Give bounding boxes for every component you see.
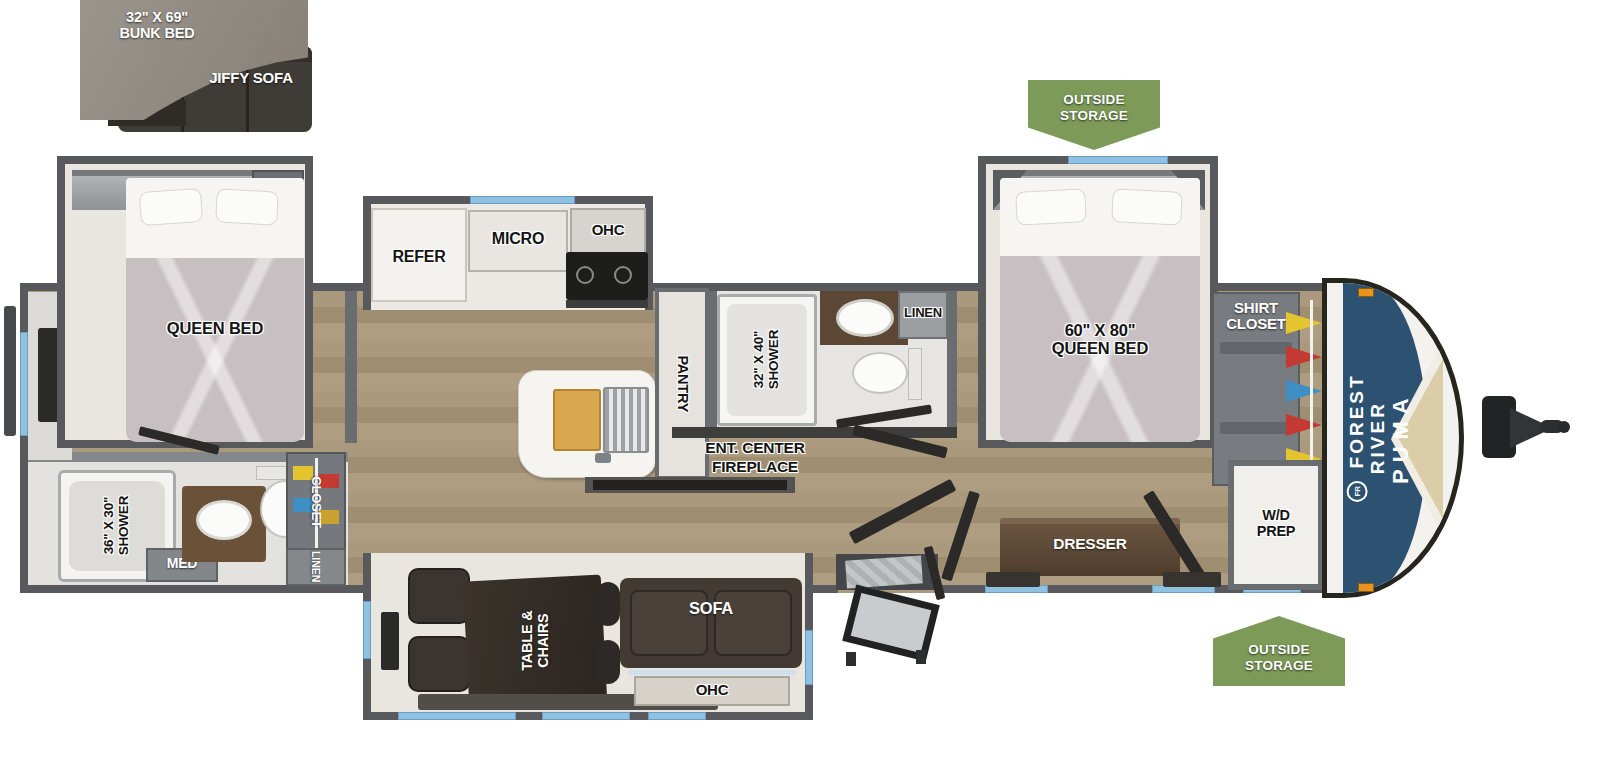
cooktop bbox=[566, 252, 648, 300]
sofa-base bbox=[620, 578, 802, 668]
shirt-rod bbox=[1310, 300, 1313, 480]
mid-shower-text: 32" X 40" SHOWER bbox=[752, 330, 781, 390]
rear-linen-text: LINEN bbox=[310, 551, 321, 583]
living-tv bbox=[381, 612, 399, 670]
burner-1 bbox=[576, 266, 594, 284]
living-window-right bbox=[805, 630, 813, 685]
brand-logo: FR bbox=[1346, 481, 1367, 502]
dinette-chair-1 bbox=[408, 568, 470, 624]
kitchen-window bbox=[470, 196, 575, 204]
rear-shower-text: 36" X 30" SHOWER bbox=[102, 496, 131, 556]
front-bed-pillow-1 bbox=[1015, 188, 1087, 226]
kitchen-island bbox=[518, 370, 656, 478]
sofa-label: SOFA bbox=[620, 600, 802, 618]
rear-wall-window bbox=[20, 332, 28, 436]
mid-shower-label: 32" X 40" SHOWER bbox=[717, 294, 817, 426]
rear-linen-label: LINEN bbox=[286, 548, 346, 586]
rear-sink bbox=[196, 500, 252, 540]
burner-2 bbox=[614, 266, 632, 284]
rear-bed-pillow-2 bbox=[215, 188, 279, 225]
mid-bath-left-wall bbox=[709, 291, 717, 438]
cap-brand: FR FOREST RIVER PUMA bbox=[1327, 283, 1431, 593]
outside-storage-top-text: OUTSIDE STORAGE bbox=[1060, 92, 1128, 123]
living-window-left bbox=[363, 601, 371, 659]
wd-prep-label: W/D PREP bbox=[1236, 508, 1316, 539]
rear-bumper bbox=[4, 306, 16, 436]
dresser-label: DRESSER bbox=[1000, 536, 1180, 553]
shirt-closet-label: SHIRT CLOSET bbox=[1214, 300, 1298, 332]
mid-linen-label: LINEN bbox=[890, 306, 956, 320]
hitch-ball bbox=[1558, 421, 1570, 433]
front-bed-label: 60" X 80" QUEEN BED bbox=[1030, 322, 1170, 358]
step-leg-2 bbox=[916, 650, 926, 664]
front-cap: FR FOREST RIVER PUMA bbox=[1322, 278, 1464, 598]
living-ohc-label: OHC bbox=[634, 682, 790, 698]
door-mat-2 bbox=[1163, 572, 1221, 587]
kitchen-ohc-label: OHC bbox=[570, 222, 646, 238]
marker-light-top bbox=[1358, 288, 1374, 297]
fireplace-label: FIREPLACE bbox=[665, 459, 845, 476]
rear-closet-label: CLOSET bbox=[286, 452, 346, 552]
jiffy-sofa-label: JIFFY SOFA bbox=[196, 70, 306, 86]
sofa-window-sill bbox=[628, 670, 796, 675]
door-mat-1 bbox=[986, 572, 1040, 587]
fireplace-insert bbox=[593, 480, 787, 490]
rear-closet-text: CLOSET bbox=[309, 476, 323, 528]
refer-label: REFER bbox=[371, 248, 467, 265]
micro-label: MICRO bbox=[468, 230, 568, 247]
dinette-table-text: TABLE & CHAIRS bbox=[519, 611, 550, 671]
marker-light-bottom bbox=[1358, 583, 1374, 592]
mid-sink bbox=[836, 299, 894, 337]
rear-bed-label: QUEEN BED bbox=[140, 320, 290, 338]
bunk-label: 32" X 69" BUNK BED bbox=[92, 10, 222, 41]
brand-model: PUMA bbox=[1387, 392, 1412, 485]
rear-bed-mattress bbox=[126, 258, 304, 442]
cutting-board bbox=[553, 389, 601, 451]
ent-center-cabinet bbox=[585, 477, 795, 493]
mid-toilet bbox=[852, 352, 908, 394]
closet-shelf-2 bbox=[1220, 422, 1292, 434]
outside-storage-bottom-text: OUTSIDE STORAGE bbox=[1245, 642, 1313, 673]
dinette-table-label: TABLE & CHAIRS bbox=[466, 578, 604, 704]
mid-bath-south-wall bbox=[672, 427, 957, 438]
ent-center-label: ENT. CENTER bbox=[665, 440, 845, 457]
living-window-2 bbox=[542, 712, 630, 720]
island-faucet bbox=[595, 453, 611, 463]
front-bed-pillow-2 bbox=[1111, 188, 1183, 226]
dinette-chair-3 bbox=[596, 582, 620, 626]
outside-storage-badge-bottom: OUTSIDE STORAGE bbox=[1213, 616, 1345, 686]
sink-drying-rack bbox=[603, 387, 649, 453]
front-bedroom-window bbox=[1068, 156, 1168, 164]
closet-shelf-1 bbox=[1220, 342, 1292, 354]
brand-name: FOREST RIVER bbox=[1346, 374, 1388, 475]
rear-bed-pillow-1 bbox=[139, 188, 203, 226]
outside-storage-badge-top: OUTSIDE STORAGE bbox=[1028, 80, 1160, 150]
living-window-3 bbox=[648, 712, 706, 720]
mid-toilet-tank bbox=[908, 348, 922, 400]
living-window-1 bbox=[398, 712, 516, 720]
floorplan-canvas: 36" X 30" SHOWER MED CLOSET LINEN OHC LI… bbox=[0, 0, 1600, 763]
dinette-chair-2 bbox=[408, 636, 470, 692]
step-leg-1 bbox=[846, 652, 856, 666]
bedroom-kitchen-wall bbox=[345, 291, 357, 443]
pantry-text: PANTRY bbox=[674, 356, 690, 413]
cooktop-vent bbox=[566, 300, 648, 308]
dinette-chair-4 bbox=[596, 640, 620, 684]
